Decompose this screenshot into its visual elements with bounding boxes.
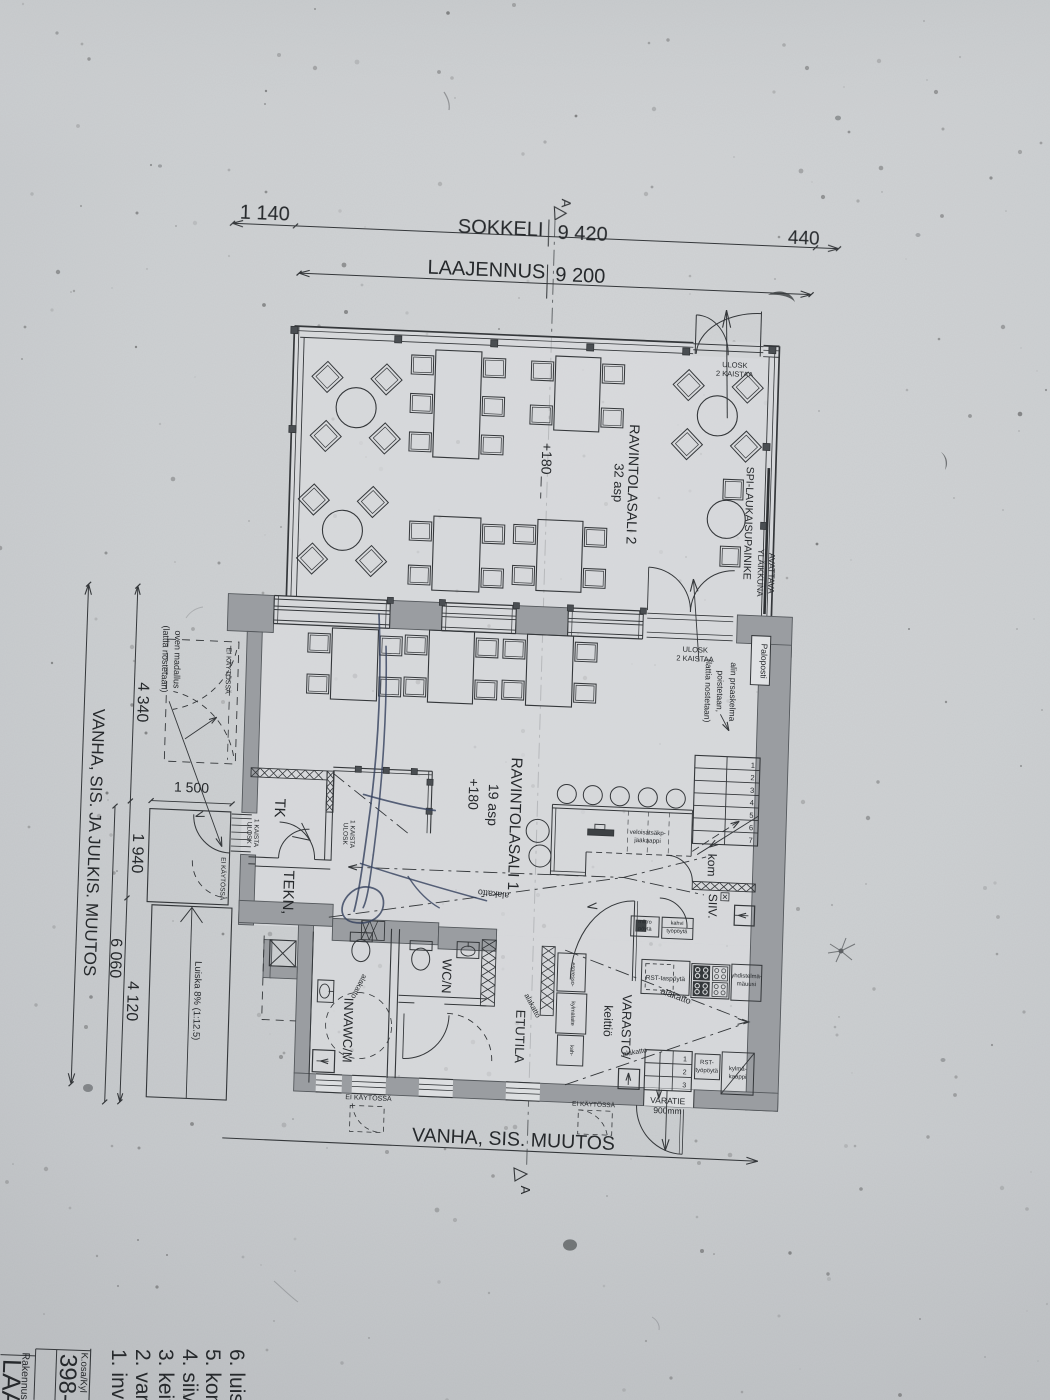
svg-text:1 940: 1 940: [128, 833, 146, 874]
svg-text:pöytä: pöytä: [638, 926, 653, 933]
svg-text:kahvi: kahvi: [671, 921, 684, 928]
svg-text:EI KÄYTÖSSÄ: EI KÄYTÖSSÄ: [223, 647, 232, 694]
svg-text:(lattia nostetaan): (lattia nostetaan): [159, 625, 171, 692]
svg-text:(lattia nostetaan): (lattia nostetaan): [702, 659, 714, 723]
svg-text:1 500: 1 500: [174, 779, 210, 796]
svg-text:6 060: 6 060: [106, 938, 124, 979]
svg-text:TK: TK: [271, 798, 289, 818]
svg-text:mikro: mikro: [638, 919, 652, 926]
svg-text:9 420: 9 420: [557, 222, 608, 246]
svg-text:SIIV.: SIIV.: [705, 894, 720, 919]
svg-text:työpöytä: työpöytä: [666, 928, 688, 935]
svg-text:7: 7: [748, 836, 752, 845]
svg-text:5: 5: [749, 811, 753, 820]
svg-text:EI KÄYTÖSSÄ: EI KÄYTÖSSÄ: [218, 857, 227, 901]
svg-text:A: A: [518, 1186, 533, 1195]
svg-text:1 KAISTA: 1 KAISTA: [252, 819, 260, 848]
svg-text:AVATTAVA: AVATTAVA: [766, 553, 777, 594]
svg-text:oven madallus: oven madallus: [171, 630, 183, 689]
svg-text:1: 1: [683, 1056, 687, 1063]
svg-text:2: 2: [750, 773, 754, 782]
svg-text:4: 4: [750, 798, 754, 807]
svg-text:+180: +180: [538, 443, 555, 475]
svg-text:ULOSK: ULOSK: [245, 822, 253, 845]
svg-text:2 KAISTAA: 2 KAISTAA: [716, 369, 754, 380]
svg-text:+180: +180: [465, 778, 482, 810]
svg-text:2: 2: [683, 1069, 687, 1076]
svg-text:RST-: RST-: [700, 1060, 714, 1067]
svg-text:9 200: 9 200: [555, 264, 606, 288]
svg-text:Rakennusto: Rakennusto: [18, 1352, 32, 1400]
svg-text:TEKN,: TEKN,: [279, 870, 297, 915]
svg-text:kah-: kah-: [568, 1045, 574, 1056]
svg-text:K.osa/Kyl: K.osa/Kyl: [77, 1352, 89, 1393]
svg-text:kom: kom: [705, 854, 720, 877]
svg-text:398-4: 398-4: [52, 1353, 81, 1400]
svg-text:Paloposti: Paloposti: [759, 643, 770, 678]
svg-text:4. siivo: 4. siivo: [178, 1349, 201, 1400]
svg-text:1 140: 1 140: [239, 202, 290, 226]
svg-text:4 340: 4 340: [133, 682, 151, 723]
svg-text:3: 3: [750, 786, 754, 795]
svg-text:19 asp: 19 asp: [485, 784, 502, 827]
svg-text:alin prsaskelma: alin prsaskelma: [727, 662, 739, 722]
svg-text:WC/N: WC/N: [439, 959, 455, 994]
svg-text:4 120: 4 120: [123, 981, 141, 1022]
svg-text:keittiö: keittiö: [601, 1005, 616, 1037]
svg-text:ETUTILA: ETUTILA: [512, 1009, 529, 1063]
svg-text:3. keitt: 3. keitt: [154, 1349, 177, 1400]
svg-text:6. luiska: 6. luiska: [225, 1349, 248, 1400]
svg-text:mäuusi: mäuusi: [737, 981, 757, 988]
svg-text:5. kom: 5. kom: [201, 1349, 224, 1400]
svg-text:1. inva: 1. inva: [107, 1349, 130, 1400]
svg-text:työpöytä: työpöytä: [695, 1068, 719, 1075]
svg-text:440: 440: [788, 228, 820, 250]
svg-text:kylmälaite: kylmälaite: [569, 1001, 576, 1026]
svg-text:espresso-: espresso-: [569, 962, 576, 987]
svg-text:poistetaan,: poistetaan,: [714, 670, 725, 712]
svg-text:6: 6: [749, 823, 753, 832]
svg-text:SOKKELI: SOKKELI: [458, 216, 544, 242]
svg-text:1: 1: [751, 761, 755, 770]
svg-text:ULOSK: ULOSK: [341, 823, 349, 846]
svg-text:kylmä-: kylmä-: [729, 1066, 747, 1073]
svg-text:900mm: 900mm: [653, 1105, 682, 1116]
svg-text:2. vara: 2. vara: [131, 1349, 154, 1400]
svg-text:1 KAISTA: 1 KAISTA: [348, 820, 356, 849]
svg-text:yhdistelmä-: yhdistelmä-: [731, 973, 762, 980]
svg-text:3: 3: [682, 1082, 686, 1089]
svg-text:INVAWC/M: INVAWC/M: [339, 997, 356, 1063]
svg-text:A: A: [558, 199, 573, 209]
svg-text:32 asp: 32 asp: [611, 463, 627, 503]
svg-text:kaappi: kaappi: [729, 1074, 747, 1081]
svg-text:jääkaappi: jääkaappi: [633, 837, 661, 845]
